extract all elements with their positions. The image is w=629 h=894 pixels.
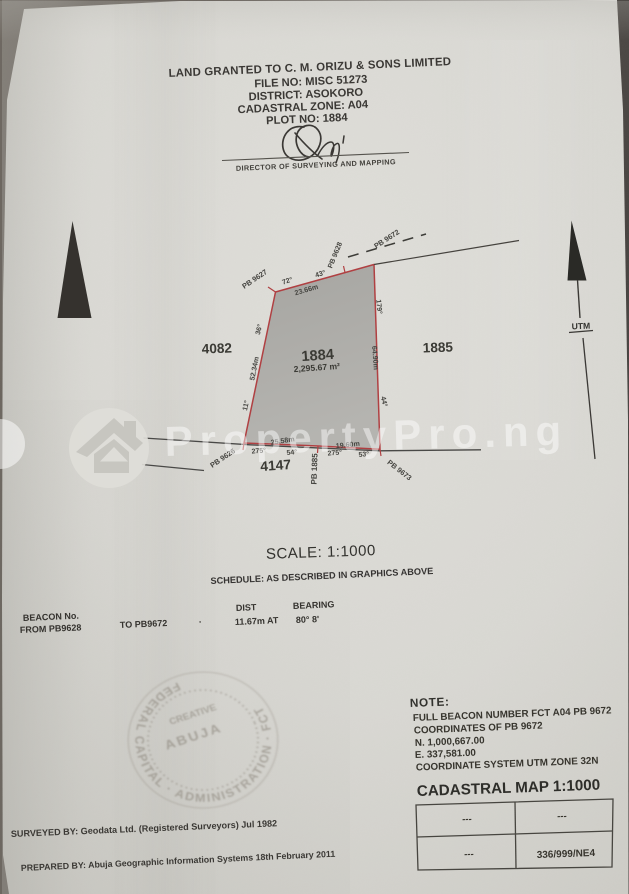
svg-text:11.67m AT: 11.67m AT bbox=[235, 615, 279, 627]
svg-text:DIST: DIST bbox=[236, 602, 257, 613]
svg-text:UTM: UTM bbox=[571, 321, 590, 332]
svg-text:---: --- bbox=[557, 811, 567, 822]
svg-text:64.90m: 64.90m bbox=[370, 346, 380, 371]
svg-text:336/999/NE4: 336/999/NE4 bbox=[537, 848, 596, 861]
svg-text:---: --- bbox=[464, 849, 474, 860]
svg-text:NOTE:: NOTE: bbox=[410, 694, 450, 710]
svg-text:BEARING: BEARING bbox=[293, 599, 335, 611]
svg-text:TO PB9672: TO PB9672 bbox=[120, 618, 168, 630]
svg-text:1885: 1885 bbox=[422, 339, 453, 355]
svg-text:4082: 4082 bbox=[201, 340, 232, 356]
svg-text:---: --- bbox=[462, 814, 472, 825]
svg-text:80° 8': 80° 8' bbox=[296, 614, 320, 625]
svg-text:179°: 179° bbox=[374, 299, 383, 314]
svg-text:·: · bbox=[199, 617, 202, 627]
